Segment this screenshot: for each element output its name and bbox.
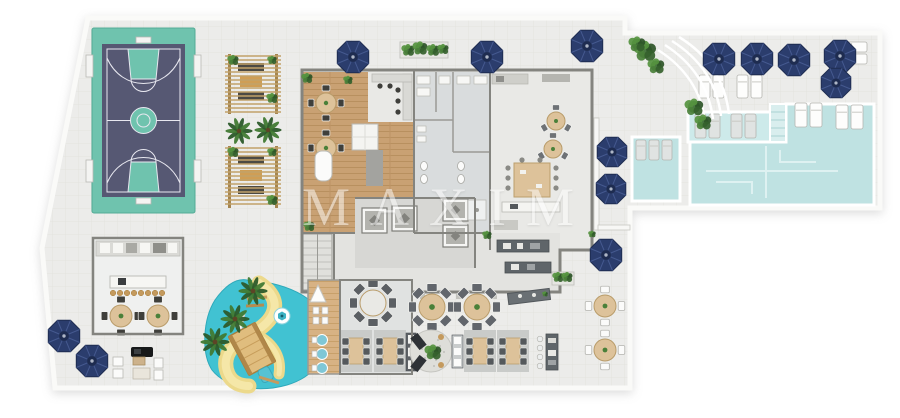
patio-umbrella — [821, 68, 851, 98]
patio-umbrella — [824, 40, 855, 71]
restroom-fixture — [474, 76, 487, 84]
communal-table — [514, 163, 550, 197]
patio-umbrella — [471, 41, 502, 72]
kids-chair — [313, 307, 319, 314]
key-top — [128, 49, 159, 79]
counter-item — [530, 243, 540, 249]
planter-greens — [552, 272, 572, 282]
garden-wall — [594, 118, 599, 230]
tv-screen — [134, 349, 141, 354]
restroom-fixture — [417, 88, 430, 96]
coffee-machine — [510, 204, 518, 209]
restroom-fixture — [457, 76, 470, 84]
pergola-table — [240, 76, 262, 87]
kitchen-appliance — [153, 243, 166, 253]
patio-umbrella — [596, 174, 626, 204]
spinner-pin — [281, 315, 284, 318]
toilet — [458, 175, 465, 184]
kitchen-appliance — [100, 243, 110, 253]
amenity-floor-plan — [0, 0, 900, 418]
toilet — [421, 175, 428, 184]
hoop-top — [136, 37, 151, 43]
counter-item — [548, 350, 556, 356]
key-bottom — [128, 162, 159, 192]
kids-chair — [322, 307, 328, 314]
sink — [417, 136, 426, 142]
island-appliance — [118, 278, 126, 285]
court-bench — [86, 55, 93, 77]
shelf-unit — [542, 74, 570, 82]
patio-umbrella — [337, 41, 368, 72]
counter-item — [503, 243, 511, 249]
laptop — [520, 170, 526, 174]
buffet-item — [532, 293, 536, 297]
in-pool-lounger — [636, 140, 672, 160]
hoop-bottom — [136, 198, 151, 204]
kids-chair — [312, 337, 317, 343]
lounge-chair — [113, 369, 123, 378]
sink — [417, 126, 426, 132]
patio-umbrella — [76, 345, 107, 376]
restroom-fixture — [439, 76, 450, 84]
kitchen-appliance — [113, 243, 123, 253]
kids-chair — [322, 317, 328, 324]
toilet — [421, 162, 428, 171]
daybed — [315, 151, 332, 181]
terrace-round-table — [409, 284, 456, 331]
counter-appliance — [496, 76, 504, 82]
craft-oval-table — [350, 280, 397, 327]
lounge-chair — [113, 357, 123, 366]
kitchen-appliance — [168, 243, 177, 253]
kids-chair — [312, 351, 317, 357]
kids-chair — [312, 365, 317, 371]
lounge-chair — [154, 358, 163, 368]
floor-plan-stage: MAXIM — [0, 0, 900, 418]
kids-table — [317, 335, 328, 346]
laptop — [536, 184, 542, 188]
patio-umbrella — [590, 239, 621, 270]
patio-umbrella — [48, 320, 79, 351]
patio-umbrella — [571, 30, 602, 61]
storage-unit — [494, 220, 518, 230]
terrace-round-table — [454, 284, 501, 331]
coffee-table — [133, 357, 145, 365]
counter-item — [527, 264, 535, 270]
kitchen-appliance — [140, 243, 150, 253]
pillow-bench — [452, 335, 463, 368]
bar-counter — [372, 74, 412, 82]
kids-table — [317, 363, 328, 374]
garden-wall — [598, 225, 630, 230]
kids-club-deck — [308, 280, 340, 374]
court-bench — [86, 160, 93, 182]
rug — [366, 150, 383, 186]
buffet-item — [518, 294, 522, 298]
court-bench — [194, 160, 201, 182]
loveseat — [133, 368, 150, 379]
patio-umbrella — [597, 137, 627, 167]
patio-umbrella — [741, 43, 772, 74]
patio-umbrella — [778, 44, 809, 75]
counter-item — [548, 360, 556, 365]
center-circle — [131, 108, 157, 134]
counter-item — [548, 338, 556, 343]
kitchen-appliance — [126, 243, 137, 253]
court-bench — [194, 55, 201, 77]
balance-beam — [246, 305, 264, 306]
counter-item — [517, 243, 523, 249]
restroom-fixture — [417, 76, 430, 84]
lounge-chair — [154, 370, 163, 380]
counter-item — [511, 264, 519, 270]
patio-umbrella — [703, 43, 734, 74]
kids-chair — [313, 317, 319, 324]
toilet — [458, 162, 465, 171]
kids-table — [317, 349, 328, 360]
